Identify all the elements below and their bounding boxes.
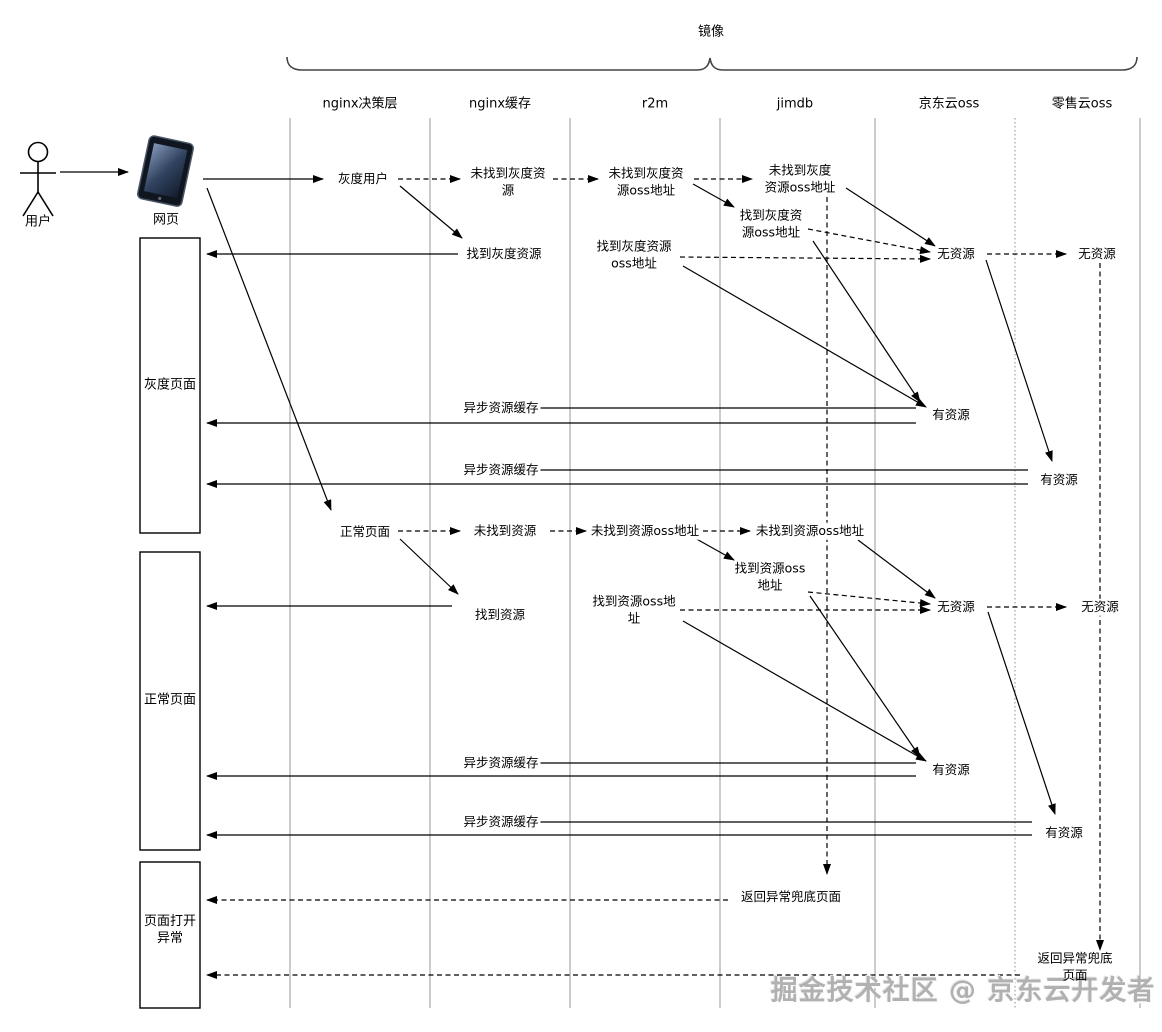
arrow-gray-r2m-to-has-resource xyxy=(683,266,926,407)
arrow-normal-jimdb-miss-to-jdoss xyxy=(858,540,935,598)
mirror-brace-label: 镜像 xyxy=(696,23,726,40)
msg-gray-async-cache-1: 异步资源缓存 xyxy=(461,400,540,417)
msg-normal-jdoss-has-resource: 有资源 xyxy=(930,762,972,779)
msg-gray-retail-has-resource: 有资源 xyxy=(1038,472,1080,489)
msg-normal-async-cache-1: 异步资源缓存 xyxy=(461,755,540,772)
msg-gray-jimdb-miss: 未找到灰度 资源oss地址 xyxy=(763,163,838,196)
msg-normal-r2m-hit: 找到资源oss地 址 xyxy=(590,594,677,627)
column-header-nginx-cache: nginx缓存 xyxy=(467,95,533,112)
msg-normal-retail-has-resource: 有资源 xyxy=(1043,825,1085,842)
msg-gray-async-cache-2: 异步资源缓存 xyxy=(461,462,540,479)
msg-normal-retail-no-resource: 无资源 xyxy=(1079,599,1121,616)
column-header-nginx-decision: nginx决策层 xyxy=(320,95,399,112)
tablet-icon xyxy=(137,135,194,207)
section-label-gray-page: 灰度页面 xyxy=(142,376,198,393)
user-actor-label: 用户 xyxy=(23,213,53,230)
msg-gray-jdoss-no-resource: 无资源 xyxy=(935,246,977,263)
msg-normal-async-cache-2: 异步资源缓存 xyxy=(461,814,540,831)
msg-normal-jimdb-hit: 找到资源oss 地址 xyxy=(733,561,808,594)
msg-normal-cache-hit: 找到资源 xyxy=(473,607,527,624)
arrow-gray-jimdb-to-has-resource xyxy=(813,241,920,402)
user-actor-icon xyxy=(20,143,56,217)
arrow-normal-cache-hit xyxy=(400,539,458,594)
arrow-gray-cache-hit xyxy=(400,186,462,238)
msg-exception-return-retail: 返回异常兜底页面 xyxy=(1032,951,1119,984)
column-header-retail-oss: 零售云oss xyxy=(1050,95,1115,112)
arrow-normal-r2m-to-jimdb-hit xyxy=(693,537,734,560)
sequence-diagram: 掘金技术社区 @ 京东云开发者 镜像 nginx决策层 nginx缓存 r2m … xyxy=(0,0,1162,1032)
arrow-gray-jimdb-hit-to-jdoss xyxy=(808,229,930,252)
msg-gray-cache-miss: 未找到灰度资 源 xyxy=(468,166,547,199)
section-label-normal-page: 正常页面 xyxy=(142,691,198,708)
arrow-gray-r2m-hit-to-jdoss xyxy=(680,257,930,259)
msg-gray-retail-no-resource: 无资源 xyxy=(1076,246,1118,263)
web-actor-label: 网页 xyxy=(151,211,181,228)
msg-gray-jimdb-hit: 找到灰度资 源oss地址 xyxy=(738,208,805,241)
msg-gray-r2m-hit: 找到灰度资源 oss地址 xyxy=(594,239,673,272)
msg-normal-cache-miss: 未找到资源 xyxy=(472,523,539,540)
arrow-gray-to-retail-has xyxy=(986,260,1052,461)
msg-exception-return-jimdb: 返回异常兜底页面 xyxy=(739,889,843,906)
arrow-gray-jimdb-miss-to-jdoss xyxy=(846,188,935,246)
arrow-normal-r2m-to-has-resource xyxy=(683,621,926,761)
mirror-brace xyxy=(287,57,1137,70)
msg-normal-jdoss-no-resource: 无资源 xyxy=(935,599,977,616)
column-header-jimdb: jimdb xyxy=(775,95,815,112)
section-label-page-open-exception: 页面打开 异常 xyxy=(142,913,198,947)
msg-gray-cache-hit: 找到灰度资源 xyxy=(464,246,543,263)
msg-gray-entry: 灰度用户 xyxy=(336,171,390,188)
msg-gray-r2m-miss: 未找到灰度资 源oss地址 xyxy=(606,166,685,199)
arrow-normal-to-retail-has xyxy=(988,612,1055,814)
arrow-web-to-normal-page xyxy=(207,188,331,510)
arrow-gray-r2m-to-jimdb-hit xyxy=(693,184,734,207)
msg-gray-jdoss-has-resource: 有资源 xyxy=(930,407,972,424)
msg-normal-jimdb-miss: 未找到资源oss地址 xyxy=(754,523,866,540)
arrow-normal-jimdb-hit-to-jdoss xyxy=(808,592,930,604)
column-header-r2m: r2m xyxy=(640,95,670,112)
msg-normal-r2m-miss: 未找到资源oss地址 xyxy=(589,523,701,540)
column-header-jd-oss: 京东云oss xyxy=(917,95,982,112)
msg-normal-entry: 正常页面 xyxy=(338,524,392,541)
diagram-canvas xyxy=(0,0,1162,1032)
